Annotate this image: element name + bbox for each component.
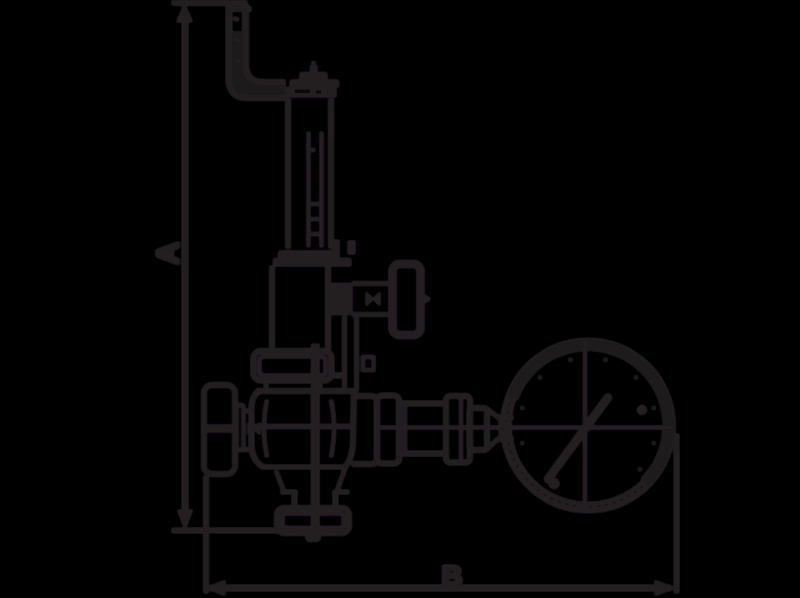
svg-text:A: A (150, 242, 185, 264)
svg-text:B: B (442, 561, 463, 593)
